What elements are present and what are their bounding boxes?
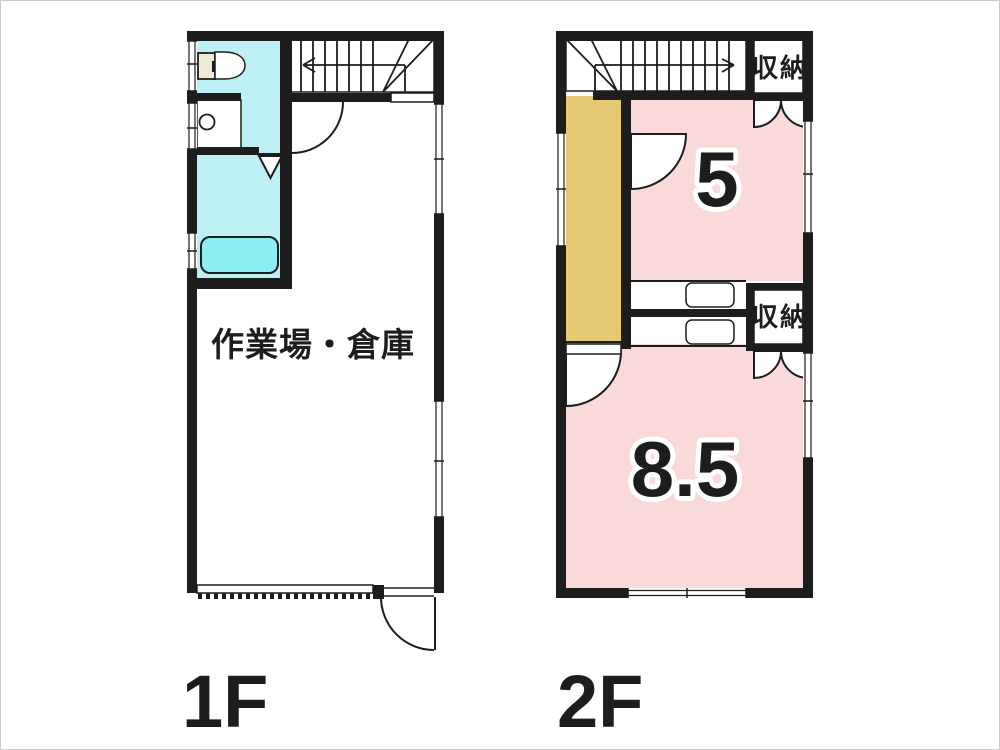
- stairs-bottom-wall: [286, 93, 391, 102]
- window-room85-bottom: [628, 588, 746, 598]
- mid-divider-wall: [621, 309, 754, 317]
- sink-counter: [197, 100, 241, 148]
- sliding-door-handle-lower: [686, 320, 734, 344]
- closet-top-bottom-wall: [746, 93, 808, 100]
- washroom-divider-wall: [187, 147, 259, 155]
- room85-door-leaf: [566, 344, 621, 354]
- closet-mid-top-wall: [746, 283, 813, 290]
- window-corridor: [556, 133, 566, 246]
- room85-size-label: 8.5: [631, 425, 739, 513]
- building-floor-plan: 作業場・倉庫 1F 収納: [1, 1, 1000, 750]
- f2-stairs-bottom-wall: [593, 91, 754, 100]
- room5-size-label: 5: [695, 135, 738, 223]
- floor-label-1f: 1F: [182, 660, 268, 743]
- shutter-right-post: [373, 585, 384, 599]
- f2-left-wall: [556, 31, 566, 598]
- entrance-door-arc: [381, 597, 434, 650]
- window-workshop-upper: [434, 104, 444, 214]
- corridor-right-wall: [621, 96, 631, 349]
- floor-plan-2f: 収納 収納: [556, 31, 813, 743]
- workshop-room-label: 作業場・倉庫: [211, 326, 415, 363]
- closet-top-label: 収納: [752, 53, 808, 83]
- f1-top-wall: [187, 31, 444, 41]
- window-room5: [803, 121, 813, 233]
- window-washroom: [187, 103, 197, 149]
- corridor-floor: [566, 96, 621, 344]
- floor-label-2f: 2F: [557, 660, 643, 743]
- sliding-door-handle-upper: [686, 283, 734, 307]
- entrance-door-icon: [381, 588, 435, 650]
- closet-mid-label: 収納: [752, 302, 808, 332]
- window-workshop-lower: [434, 401, 444, 517]
- closet-mid-bottom-wall: [746, 344, 808, 351]
- toilet-icon: [198, 52, 245, 79]
- window-bath: [187, 233, 197, 269]
- shutter-band: [197, 585, 373, 593]
- window-room85-right: [803, 353, 813, 458]
- sink-icon: [197, 100, 241, 148]
- bathtub-icon: [201, 237, 278, 273]
- floor-plan-1f: 作業場・倉庫 1F: [182, 31, 444, 743]
- f1-bottom-left-post: [187, 577, 197, 593]
- wet-area-right-wall: [280, 31, 292, 289]
- floor-plan-page: 作業場・倉庫 1F 収納: [0, 0, 1000, 750]
- f2-right-wall: [803, 31, 813, 598]
- bath-bottom-wall: [187, 278, 292, 289]
- window-toilet: [187, 41, 197, 91]
- toilet-bowl: [215, 52, 245, 79]
- f2-top-wall: [556, 31, 813, 41]
- understairs-passage: [391, 93, 434, 102]
